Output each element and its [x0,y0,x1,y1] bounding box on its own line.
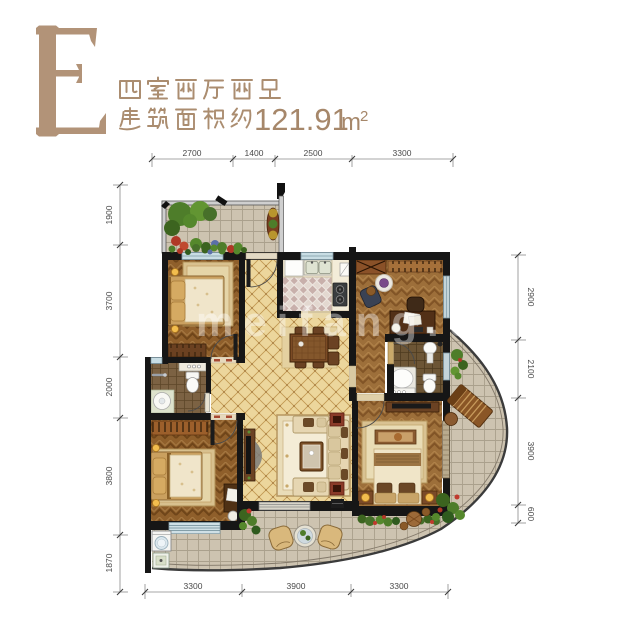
svg-text:3900: 3900 [526,442,536,461]
svg-text:3900: 3900 [287,581,306,591]
svg-text:3800: 3800 [104,466,114,485]
svg-text:3300: 3300 [390,581,409,591]
svg-text:3300: 3300 [393,148,412,158]
svg-text:3700: 3700 [104,291,114,310]
svg-text:meifang.com: meifang.com [196,298,565,345]
svg-text:1400: 1400 [245,148,264,158]
svg-text:2700: 2700 [183,148,202,158]
svg-text:121.91: 121.91 [254,102,349,137]
svg-text:1900: 1900 [104,205,114,224]
svg-text:600: 600 [526,507,536,521]
svg-text:2500: 2500 [304,148,323,158]
svg-text:2000: 2000 [104,377,114,396]
svg-text:2: 2 [360,108,368,125]
svg-text:3300: 3300 [184,581,203,591]
svg-text:m: m [341,109,361,136]
svg-text:2100: 2100 [526,360,536,379]
svg-text:1870: 1870 [104,553,114,572]
